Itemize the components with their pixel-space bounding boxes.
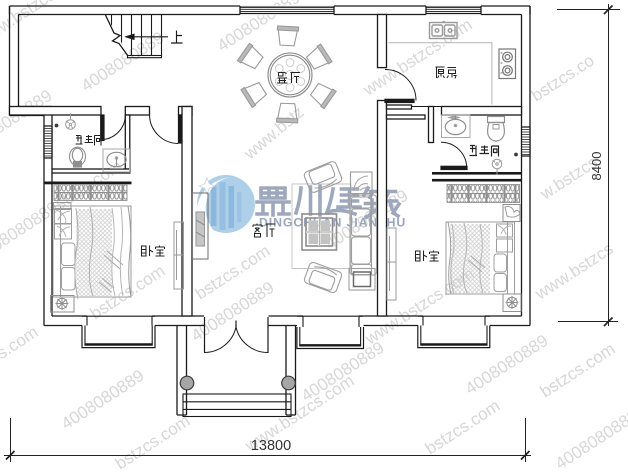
svg-text:bstzcs.com: bstzcs.com xyxy=(112,411,194,473)
svg-text:bstzcs.com: bstzcs.com xyxy=(537,339,619,401)
svg-text:13800: 13800 xyxy=(251,438,291,454)
svg-text:bstzcs.co: bstzcs.co xyxy=(528,51,598,106)
svg-text:8400: 8400 xyxy=(589,152,604,181)
svg-text:www.bstzcs: www.bstzcs xyxy=(531,239,617,304)
svg-text:bstzcs.com: bstzcs.com xyxy=(422,396,504,458)
svg-text:www.bstzcs.com: www.bstzcs.com xyxy=(359,15,476,100)
svg-text:4008080889: 4008080889 xyxy=(58,366,148,433)
svg-text:www.bstzcs.com: www.bstzcs.com xyxy=(0,0,90,50)
svg-text:4008080889: 4008080889 xyxy=(78,28,168,95)
svg-text:www.bstz: www.bstz xyxy=(240,102,308,163)
svg-text:stzcs.com: stzcs.com xyxy=(0,322,42,379)
svg-text:4008080889: 4008080889 xyxy=(552,406,628,473)
